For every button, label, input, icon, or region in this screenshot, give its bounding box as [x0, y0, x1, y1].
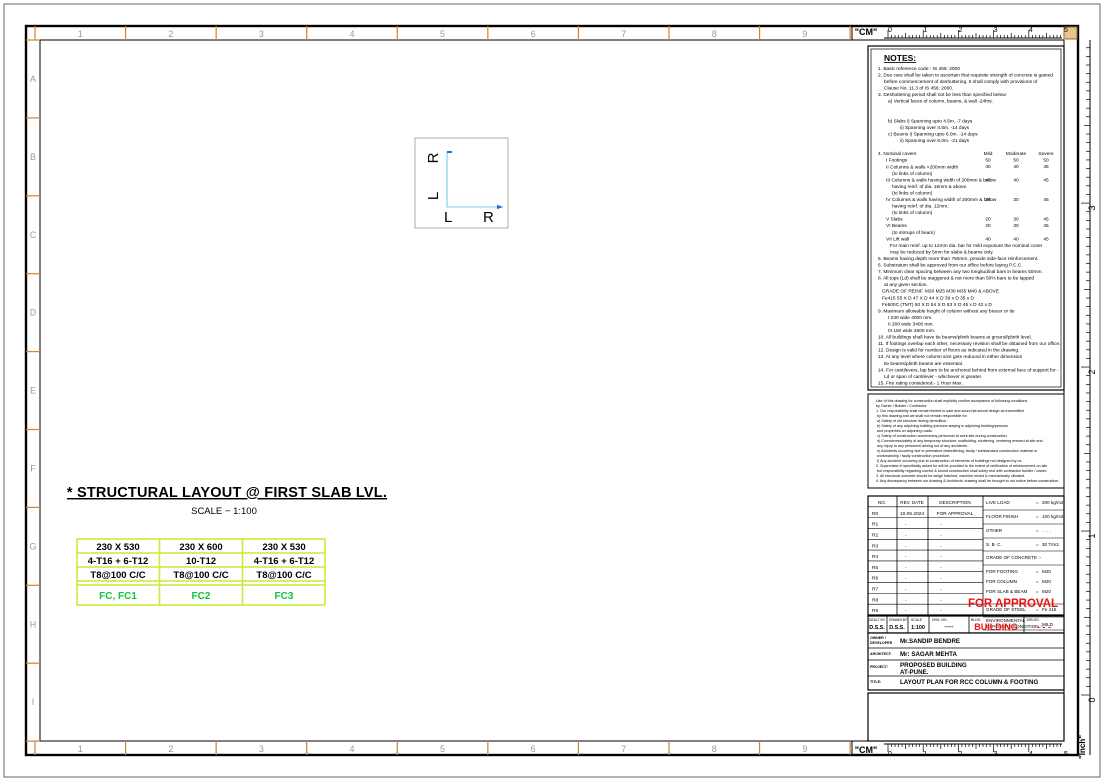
svg-text:C: C — [30, 230, 37, 240]
svg-text:3: 3 — [259, 29, 264, 39]
svg-text:4: 4 — [1029, 751, 1033, 758]
svg-text:A: A — [30, 74, 36, 84]
svg-text:R4: R4 — [872, 554, 878, 560]
svg-text:H: H — [30, 619, 37, 629]
svg-text:9: 9 — [802, 744, 807, 754]
svg-text:5: 5 — [440, 744, 445, 754]
svg-text:S. B. C.: S. B. C. — [986, 542, 1002, 547]
svg-text:- - -: - - - — [1037, 622, 1051, 632]
svg-text:1: 1 — [923, 751, 927, 758]
svg-text:DEALT BY: DEALT BY — [869, 618, 886, 622]
svg-text:10.05.2024: 10.05.2024 — [900, 511, 924, 517]
svg-text:FOR APPROVAL: FOR APPROVAL — [968, 598, 1058, 610]
svg-text:D.S.S.: D.S.S. — [869, 625, 885, 631]
svg-text:D.S.S.: D.S.S. — [889, 625, 905, 631]
svg-text:2: 2 — [958, 751, 962, 758]
svg-text:REV. DATE: REV. DATE — [900, 500, 924, 505]
svg-text:DRG. NO.: DRG. NO. — [932, 618, 948, 622]
svg-text:SCALE − 1:100: SCALE − 1:100 — [191, 506, 257, 517]
svg-text:GRADE OF CONCRETE :-: GRADE OF CONCRETE :- — [986, 555, 1042, 560]
svg-text:1: 1 — [923, 27, 927, 34]
svg-text:=: = — [1036, 514, 1039, 519]
svg-text:9: 9 — [802, 29, 807, 39]
svg-text:6: 6 — [531, 744, 536, 754]
svg-text:M20: M20 — [1042, 589, 1051, 594]
svg-text:4-T16 + 6-T12: 4-T16 + 6-T12 — [254, 556, 314, 567]
svg-text:LAYOUT PLAN FOR RCC COLUMN: LAYOUT PLAN FOR RCC COLUMN & FOOTING — [900, 679, 1038, 686]
svg-text:3: 3 — [994, 27, 998, 34]
svg-text:M20: M20 — [1042, 579, 1051, 584]
svg-text:. . . .: . . . . — [1042, 528, 1051, 533]
svg-text:4: 4 — [1029, 27, 1033, 34]
svg-text:L: L — [425, 192, 442, 200]
svg-text:3: 3 — [1087, 205, 1097, 210]
svg-text:30 T/m2: 30 T/m2 — [1042, 542, 1059, 547]
svg-text:G: G — [29, 541, 36, 551]
svg-text:R5: R5 — [872, 565, 878, 571]
svg-text:FLOOR FINISH: FLOOR FINISH — [986, 514, 1018, 519]
svg-text:T8@100 C/C: T8@100 C/C — [90, 570, 145, 581]
svg-text:"Inch": "Inch" — [1078, 735, 1087, 759]
svg-text:AT-PUNE.: AT-PUNE. — [900, 669, 929, 676]
svg-text:4: 4 — [349, 744, 354, 754]
svg-text:2: 2 — [168, 29, 173, 39]
svg-text:TITLE:: TITLE: — [870, 680, 881, 684]
svg-text:=: = — [1036, 528, 1039, 533]
svg-text:=: = — [1036, 579, 1039, 584]
svg-text:1: 1 — [78, 744, 83, 754]
svg-text:R: R — [483, 209, 494, 226]
svg-text:1: 1 — [78, 29, 83, 39]
svg-text:1:100: 1:100 — [911, 625, 925, 631]
svg-text:-----: ----- — [945, 624, 954, 630]
svg-text:OTHER: OTHER — [986, 528, 1003, 533]
svg-text:5: 5 — [1064, 27, 1068, 34]
svg-text:R3: R3 — [872, 543, 878, 549]
svg-text:0: 0 — [1087, 697, 1097, 702]
svg-text:0: 0 — [888, 751, 892, 758]
svg-text:10-T12: 10-T12 — [186, 556, 216, 567]
svg-text:E: E — [30, 386, 36, 396]
svg-text:R6: R6 — [872, 576, 878, 582]
svg-text:FC2: FC2 — [192, 591, 211, 602]
svg-text:DRAWN BY: DRAWN BY — [889, 618, 908, 622]
svg-text:1: 1 — [1087, 533, 1097, 538]
svg-text:FOR FOOTING: FOR FOOTING — [986, 569, 1018, 574]
svg-text:NO.: NO. — [878, 500, 886, 505]
svg-text:NOTES:: NOTES: — [884, 53, 916, 63]
svg-text:2: 2 — [958, 27, 962, 34]
svg-text:DEVELOPER: DEVELOPER — [870, 641, 893, 645]
svg-text:230 X 530: 230 X 530 — [262, 542, 305, 553]
svg-text:200 kg/m2: 200 kg/m2 — [1042, 500, 1064, 505]
svg-text:=: = — [1036, 589, 1039, 594]
svg-text:D: D — [30, 308, 37, 318]
svg-text:6: 6 — [531, 29, 536, 39]
svg-text:FOR APPROVAL: FOR APPROVAL — [937, 511, 974, 517]
svg-text:8: 8 — [712, 29, 717, 39]
svg-text:I: I — [32, 697, 35, 707]
svg-text:L: L — [444, 209, 452, 226]
svg-text:M20: M20 — [1042, 569, 1051, 574]
svg-text:230 X 600: 230 X 600 — [179, 542, 222, 553]
svg-text:PROPOSED BUILDING: PROPOSED BUILDING — [900, 662, 967, 669]
svg-text:4: 4 — [349, 29, 354, 39]
svg-text:=: = — [1036, 542, 1039, 547]
svg-text:F: F — [30, 463, 36, 473]
svg-text:R1: R1 — [872, 522, 878, 528]
svg-text:ARCHITECT:: ARCHITECT: — [870, 652, 892, 656]
svg-text:5: 5 — [440, 29, 445, 39]
svg-text:0: 0 — [888, 27, 892, 34]
svg-text:R: R — [425, 152, 442, 163]
svg-text:2: 2 — [168, 744, 173, 754]
svg-text:SCALE: SCALE — [911, 618, 923, 622]
svg-text:=: = — [1036, 500, 1039, 505]
svg-text:FC, FC1: FC, FC1 — [99, 591, 137, 602]
svg-text:R8: R8 — [872, 597, 878, 603]
svg-text:OWNER /: OWNER / — [870, 636, 886, 640]
svg-text:"CM": "CM" — [855, 27, 878, 37]
svg-text:R7: R7 — [872, 587, 878, 593]
svg-text:=: = — [1036, 569, 1039, 574]
svg-text:* STRUCTURAL LAYOUT @ FIRST SL: * STRUCTURAL LAYOUT @ FIRST SLAB LVL. — [67, 485, 387, 501]
svg-text:T8@100 C/C: T8@100 C/C — [256, 570, 311, 581]
svg-text:100 kg/m2: 100 kg/m2 — [1042, 514, 1064, 519]
svg-text:Mr: SAGAR MEHTA: Mr: SAGAR MEHTA — [900, 651, 957, 658]
svg-text:PROJECT:: PROJECT: — [870, 665, 888, 669]
svg-text:7: 7 — [621, 744, 626, 754]
svg-text:FOR COLUMN: FOR COLUMN — [986, 579, 1017, 584]
svg-text:2: 2 — [1087, 369, 1097, 374]
svg-text:T8@100 C/C: T8@100 C/C — [173, 570, 228, 581]
svg-text:FC3: FC3 — [275, 591, 294, 602]
svg-text:B: B — [30, 152, 36, 162]
svg-text:5: 5 — [1064, 751, 1068, 758]
svg-text:4-T16 + 6-T12: 4-T16 + 6-T12 — [88, 556, 148, 567]
svg-text:"CM": "CM" — [855, 745, 878, 755]
svg-text:8: 8 — [712, 744, 717, 754]
svg-text:3: 3 — [994, 751, 998, 758]
svg-text:DESCRIPTION: DESCRIPTION — [939, 500, 970, 505]
svg-text:R2: R2 — [872, 532, 878, 538]
svg-text:R9: R9 — [872, 608, 878, 614]
svg-text:FOR SLAB & BEAM: FOR SLAB & BEAM — [986, 589, 1028, 594]
svg-text:3: 3 — [259, 744, 264, 754]
svg-text:R0: R0 — [872, 511, 878, 517]
svg-text:Mr.SANDIP BENDRE: Mr.SANDIP BENDRE — [900, 638, 960, 645]
svg-text:7: 7 — [621, 29, 626, 39]
svg-text:LIVE LOAD: LIVE LOAD — [986, 500, 1010, 505]
svg-text:BUILDING: BUILDING — [974, 622, 1018, 632]
svg-text:230 X 530: 230 X 530 — [96, 542, 139, 553]
